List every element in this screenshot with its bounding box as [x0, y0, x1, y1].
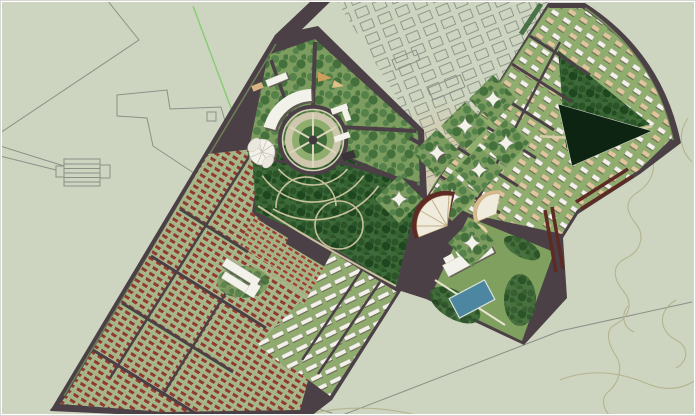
resort-tree-grove: [504, 274, 536, 326]
circular-plaza: [283, 110, 344, 171]
plaza-center-monument: [309, 136, 318, 145]
master-plan-canvas: [0, 0, 696, 416]
master-plan-rendering: [0, 0, 696, 416]
